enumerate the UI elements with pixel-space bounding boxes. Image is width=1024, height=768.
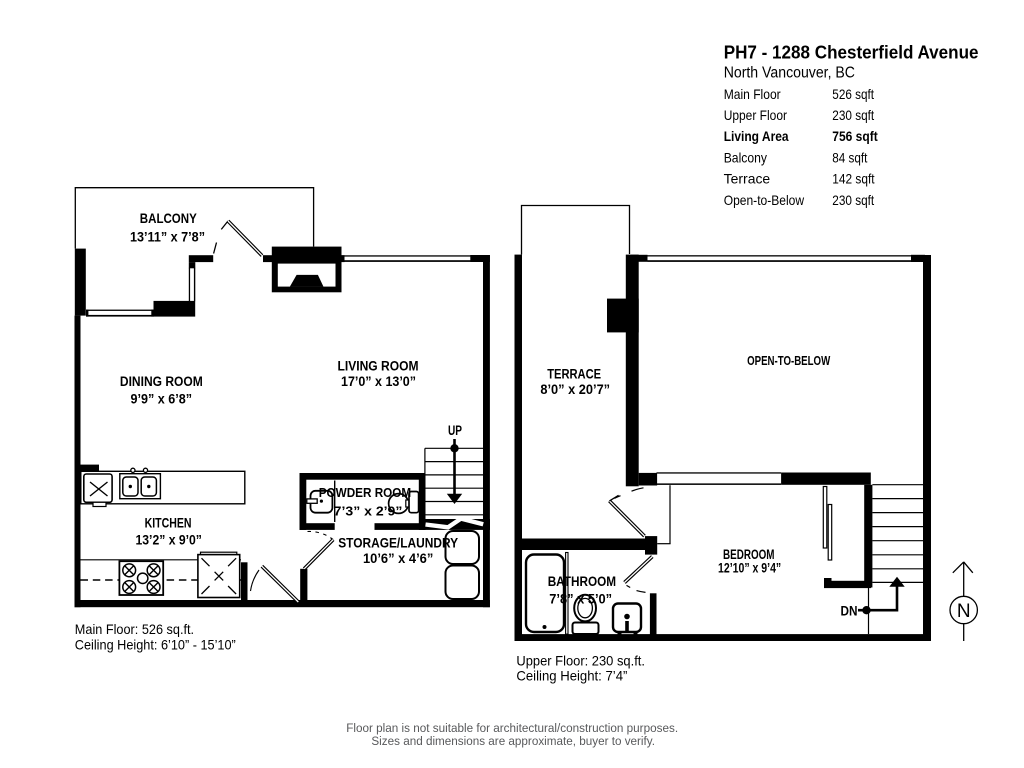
svg-text:7’8” x 5’0”: 7’8” x 5’0” bbox=[549, 591, 612, 607]
svg-text:Main Floor: Main Floor bbox=[724, 86, 781, 102]
svg-text:Living Area: Living Area bbox=[724, 128, 789, 144]
svg-text:142 sqft: 142 sqft bbox=[832, 171, 874, 187]
svg-text:230 sqft: 230 sqft bbox=[832, 107, 874, 123]
svg-text:84 sqft: 84 sqft bbox=[832, 149, 867, 165]
svg-text:North Vancouver, BC: North Vancouver, BC bbox=[724, 64, 855, 81]
svg-text:9’9” x 6’8”: 9’9” x 6’8” bbox=[131, 392, 193, 408]
svg-text:LIVING ROOM: LIVING ROOM bbox=[338, 359, 419, 375]
svg-text:17’0” x 13’0”: 17’0” x 13’0” bbox=[341, 374, 416, 390]
svg-text:N: N bbox=[957, 601, 971, 622]
svg-text:OPEN-TO-BELOW: OPEN-TO-BELOW bbox=[747, 354, 830, 368]
svg-text:Ceiling Height: 6’10” - 15’10”: Ceiling Height: 6’10” - 15’10” bbox=[75, 638, 236, 653]
svg-text:DINING ROOM: DINING ROOM bbox=[120, 374, 203, 390]
svg-text:Upper Floor: Upper Floor bbox=[724, 107, 788, 123]
svg-text:12’10” x 9’4”: 12’10” x 9’4” bbox=[718, 561, 781, 577]
svg-text:756 sqft: 756 sqft bbox=[832, 128, 878, 144]
svg-text:Ceiling Height: 7’4”: Ceiling Height: 7’4” bbox=[516, 669, 627, 684]
svg-text:PH7 - 1288 Chesterfield Avenue: PH7 - 1288 Chesterfield Avenue bbox=[724, 42, 979, 63]
svg-text:Balcony: Balcony bbox=[724, 149, 767, 165]
svg-text:TERRACE: TERRACE bbox=[547, 367, 601, 383]
svg-text:230 sqft: 230 sqft bbox=[832, 192, 874, 208]
svg-text:7’3” x 2’9”: 7’3” x 2’9” bbox=[334, 503, 403, 518]
svg-text:Upper Floor: 230 sq.ft.: Upper Floor: 230 sq.ft. bbox=[516, 653, 645, 668]
svg-text:Open-to-Below: Open-to-Below bbox=[724, 192, 805, 208]
svg-text:Main Floor: 526 sq.ft.: Main Floor: 526 sq.ft. bbox=[75, 622, 194, 637]
svg-text:BALCONY: BALCONY bbox=[140, 211, 197, 227]
svg-text:BATHROOM: BATHROOM bbox=[548, 574, 616, 590]
svg-text:13’11” x 7’8”: 13’11” x 7’8” bbox=[130, 229, 205, 245]
svg-text:Sizes and dimensions are appro: Sizes and dimensions are approximate, bu… bbox=[371, 734, 655, 748]
svg-text:KITCHEN: KITCHEN bbox=[145, 515, 192, 531]
svg-text:10’6” x 4’6”: 10’6” x 4’6” bbox=[363, 551, 433, 567]
svg-text:Terrace: Terrace bbox=[724, 171, 771, 187]
svg-text:13’2” x 9’0”: 13’2” x 9’0” bbox=[136, 532, 202, 548]
svg-text:Floor plan is not suitable for: Floor plan is not suitable for architect… bbox=[346, 721, 678, 735]
svg-text:526 sqft: 526 sqft bbox=[832, 86, 874, 102]
svg-text:8’0” x 20’7”: 8’0” x 20’7” bbox=[540, 382, 610, 398]
svg-text:STORAGE/LAUNDRY: STORAGE/LAUNDRY bbox=[338, 535, 458, 551]
svg-text:UP: UP bbox=[448, 423, 462, 439]
svg-text:POWDER ROOM: POWDER ROOM bbox=[319, 485, 412, 500]
svg-text:DN: DN bbox=[841, 604, 858, 620]
